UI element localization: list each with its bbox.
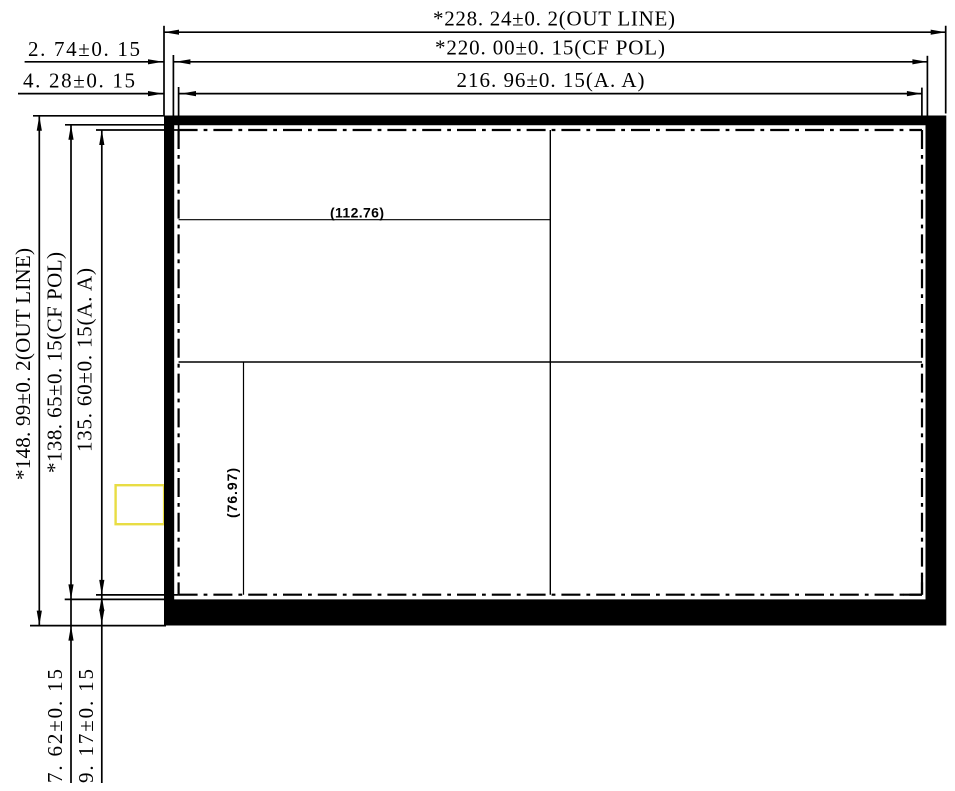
svg-text:135. 60±0. 15(A. A): 135. 60±0. 15(A. A) bbox=[73, 268, 97, 452]
svg-text:*138. 65±0. 15(CF POL): *138. 65±0. 15(CF POL) bbox=[43, 252, 67, 473]
svg-text:*220. 00±0. 15(CF POL): *220. 00±0. 15(CF POL) bbox=[435, 36, 665, 60]
svg-text:9. 17±0. 15: 9. 17±0. 15 bbox=[74, 669, 98, 783]
svg-text:*228. 24±0. 2(OUT LINE): *228. 24±0. 2(OUT LINE) bbox=[433, 7, 675, 31]
svg-text:(76.97): (76.97) bbox=[224, 468, 240, 518]
svg-text:2. 74±0. 15: 2. 74±0. 15 bbox=[28, 37, 140, 61]
svg-text:(112.76): (112.76) bbox=[330, 205, 384, 221]
svg-text:4. 28±0. 15: 4. 28±0. 15 bbox=[23, 68, 135, 92]
svg-text:7. 62±0. 15: 7. 62±0. 15 bbox=[43, 669, 67, 783]
svg-text:216. 96±0. 15(A. A): 216. 96±0. 15(A. A) bbox=[457, 68, 645, 92]
svg-text:*148. 99±0. 2(OUT LINE): *148. 99±0. 2(OUT LINE) bbox=[11, 248, 35, 480]
